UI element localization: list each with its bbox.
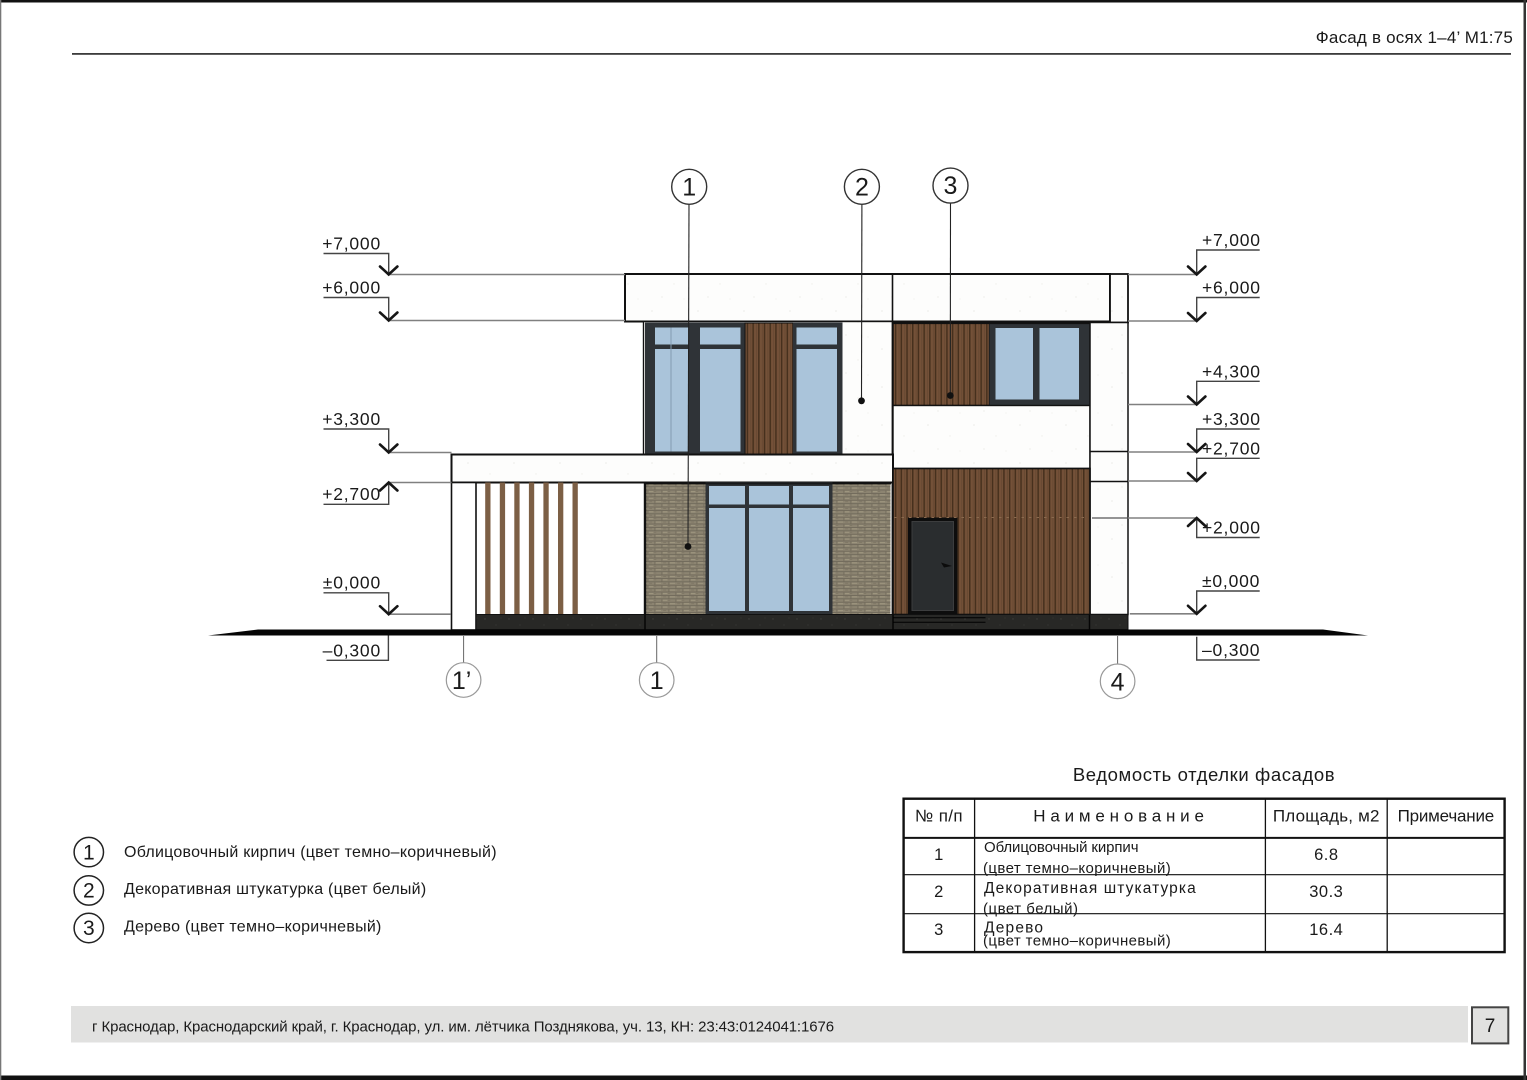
svg-text:+2,000: +2,000: [1202, 518, 1261, 538]
svg-text:Дерево (цвет темно–коричневый): Дерево (цвет темно–коричневый): [124, 919, 382, 936]
svg-text:1: 1: [934, 846, 944, 864]
svg-text:–0,300: –0,300: [1202, 640, 1260, 660]
svg-text:4: 4: [1111, 668, 1125, 696]
svg-text:Ведомость отделки фасадов: Ведомость отделки фасадов: [1073, 764, 1335, 785]
svg-text:3: 3: [83, 917, 95, 940]
svg-text:3: 3: [934, 921, 944, 939]
svg-text:+2,700: +2,700: [1202, 438, 1261, 458]
svg-text:6.8: 6.8: [1314, 846, 1338, 864]
svg-text:Декоративная штукатурка (цвет: Декоративная штукатурка (цвет белый): [124, 881, 426, 898]
svg-text:+6,000: +6,000: [322, 278, 381, 298]
svg-text:+3,300: +3,300: [1202, 409, 1261, 429]
svg-text:+4,300: +4,300: [1202, 361, 1261, 381]
svg-text:Площадь, м2: Площадь, м2: [1273, 807, 1380, 826]
svg-text:1: 1: [83, 841, 95, 864]
svg-text:Наименование: Наименование: [1033, 807, 1208, 826]
svg-text:(цвет темно–коричневый): (цвет темно–коричневый): [983, 860, 1171, 877]
svg-text:2: 2: [934, 883, 944, 901]
svg-text:2: 2: [855, 173, 869, 201]
svg-text:+6,000: +6,000: [1202, 278, 1261, 298]
svg-text:16.4: 16.4: [1309, 921, 1343, 939]
svg-text:1: 1: [682, 173, 696, 201]
svg-text:+7,000: +7,000: [322, 234, 381, 254]
svg-text:2: 2: [83, 880, 95, 903]
svg-text:Декоративная штукатурка: Декоративная штукатурка: [984, 880, 1197, 897]
svg-text:1: 1: [650, 667, 664, 695]
svg-text:30.3: 30.3: [1309, 883, 1343, 901]
svg-text:7: 7: [1485, 1016, 1496, 1037]
svg-text:3: 3: [944, 172, 958, 200]
svg-text:г Краснодар, Краснодарский кра: г Краснодар, Краснодарский край, г. Крас…: [92, 1019, 834, 1036]
svg-text:№ п/п: № п/п: [915, 807, 963, 826]
svg-text:±0,000: ±0,000: [323, 573, 381, 593]
svg-text:(цвет темно–коричневый): (цвет темно–коричневый): [983, 933, 1171, 950]
svg-text:Облицовочный кирпич (цвет темн: Облицовочный кирпич (цвет темно–коричнев…: [124, 844, 497, 861]
svg-text:Облицовочный кирпич: Облицовочный кирпич: [984, 839, 1138, 856]
svg-text:–0,300: –0,300: [323, 641, 381, 661]
svg-text:+3,300: +3,300: [322, 409, 381, 429]
svg-text:1’: 1’: [452, 667, 471, 695]
svg-text:+7,000: +7,000: [1202, 230, 1261, 250]
svg-text:Примечание: Примечание: [1398, 807, 1494, 826]
svg-text:+2,700: +2,700: [322, 484, 381, 504]
svg-text:Фасад в осях 1–4’ М1:75: Фасад в осях 1–4’ М1:75: [1316, 28, 1513, 47]
svg-text:(цвет белый): (цвет белый): [983, 901, 1078, 918]
svg-text:±0,000: ±0,000: [1202, 571, 1260, 591]
